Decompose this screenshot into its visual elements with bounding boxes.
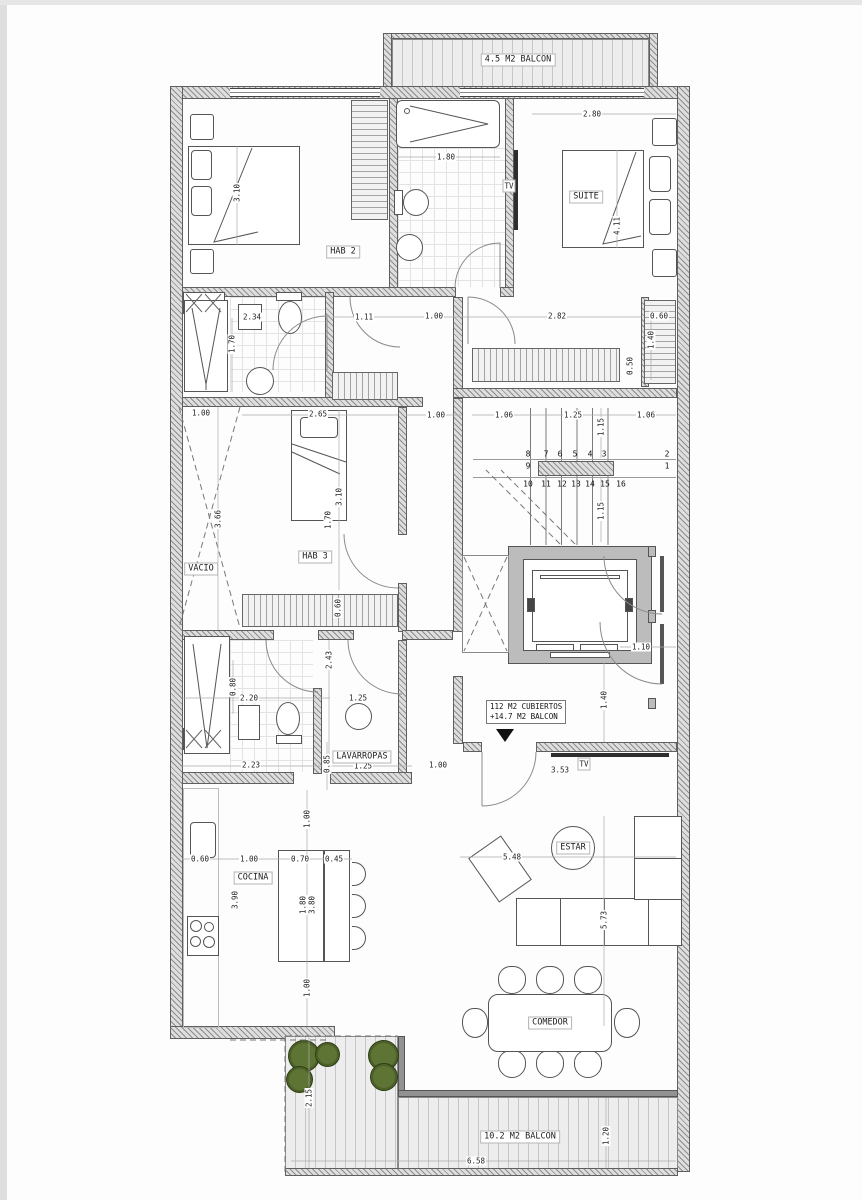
dimension-label: 3.10 xyxy=(335,487,344,507)
dimension-label: 1.70 xyxy=(228,334,237,354)
dimension-label: 0.45 xyxy=(324,855,344,864)
stair-step-number: 15 xyxy=(600,480,610,489)
dimension-label: 1.00 xyxy=(303,809,312,829)
dimension-label: 2.43 xyxy=(325,650,334,670)
dimension-label: 1.00 xyxy=(239,855,259,864)
stool xyxy=(352,894,366,918)
area-note-box: 112 M2 CUBIERTOS +14.7 M2 BALCON xyxy=(486,700,566,724)
wall-segment xyxy=(170,86,183,1038)
dimension-label: 0.70 xyxy=(290,855,310,864)
duct-shaft xyxy=(463,556,508,652)
stair-step-number: 7 xyxy=(544,450,549,459)
wall-segment xyxy=(648,698,656,709)
plant xyxy=(370,1063,398,1091)
dimension-label: 5.48 xyxy=(502,853,522,862)
top-balcony-label: 4.5 M2 BALCON xyxy=(481,54,556,67)
wall-segment xyxy=(383,33,392,88)
wall-segment xyxy=(313,688,322,774)
dimension-label: 1.25 xyxy=(348,694,368,703)
elevator-cabin xyxy=(532,570,628,642)
bathtub-drain xyxy=(404,108,410,114)
burner xyxy=(204,922,214,932)
area-note-line1: 112 M2 CUBIERTOS xyxy=(490,702,562,712)
window xyxy=(460,88,644,97)
toilet-bowl xyxy=(278,301,302,334)
dimension-label: 1.11 xyxy=(354,313,374,322)
wall-segment xyxy=(398,640,407,774)
stair-step-number: 3 xyxy=(602,450,607,459)
wall-segment xyxy=(182,772,294,784)
dimension-label: 1.40 xyxy=(647,330,656,350)
door-leaf xyxy=(660,556,664,612)
lavarropas-label: LAVARROPAS xyxy=(332,751,391,764)
wall-segment xyxy=(648,610,656,623)
elevator-rail xyxy=(540,575,620,579)
toilet-bowl xyxy=(276,702,300,735)
wardrobe-hab3 xyxy=(242,594,398,627)
bottom-balcony-label: 10.2 M2 BALCON xyxy=(480,1131,560,1144)
wall-segment xyxy=(453,297,463,390)
dimension-label: 2.65 xyxy=(308,410,328,419)
refrigerator xyxy=(190,822,216,858)
wall-segment xyxy=(536,742,677,752)
dimension-label: 3.66 xyxy=(214,509,223,529)
nightstand xyxy=(190,114,214,140)
stair-landing xyxy=(538,461,614,476)
sink-round xyxy=(396,234,423,261)
pillow xyxy=(191,150,212,180)
entry-arrow xyxy=(496,729,514,742)
elevator-guide xyxy=(527,598,535,612)
stair-line xyxy=(473,477,676,478)
wall-segment xyxy=(649,33,658,88)
pillow xyxy=(649,199,671,235)
dimension-label: 1.15 xyxy=(597,417,606,437)
floor-plan-page: 4.5 M2 BALCON xyxy=(0,0,862,1200)
dimension-label: 1.06 xyxy=(494,411,514,420)
dimension-label: 1.00 xyxy=(303,978,312,998)
chair xyxy=(536,1050,564,1078)
glass-rail xyxy=(398,1036,405,1094)
dimension-label: 2.15 xyxy=(305,1088,314,1108)
toilet-tank xyxy=(394,190,403,215)
stool xyxy=(352,862,366,886)
area-note-line2: +14.7 M2 BALCON xyxy=(490,712,562,722)
dimension-label: 3.80 xyxy=(308,895,317,915)
pillow xyxy=(300,417,338,438)
dimension-label: 1.00 xyxy=(424,312,444,321)
chair xyxy=(498,1050,526,1078)
pillow xyxy=(191,186,212,216)
wardrobe-hab2 xyxy=(351,100,388,220)
toilet-bowl xyxy=(403,189,429,216)
shower xyxy=(184,636,230,754)
dimension-label: 2.34 xyxy=(242,313,262,322)
comedor-label: COMEDOR xyxy=(528,1017,572,1030)
wall-segment xyxy=(285,1168,678,1176)
wall-segment xyxy=(463,742,482,752)
dimension-label: 3.10 xyxy=(233,183,242,203)
hab3-label: HAB 3 xyxy=(298,551,332,564)
shower xyxy=(184,300,228,392)
dimension-label: 1.40 xyxy=(600,690,609,710)
dimension-label: 3.90 xyxy=(231,890,240,910)
stair-step-number: 8 xyxy=(526,450,531,459)
dimension-label: 0.60 xyxy=(190,855,210,864)
elevator-guide xyxy=(625,598,633,612)
chair xyxy=(462,1008,488,1038)
stair-step-number: 12 xyxy=(557,480,567,489)
toilet-tank xyxy=(276,292,302,301)
wall-segment xyxy=(500,287,514,297)
dimension-label: 0.50 xyxy=(626,356,635,376)
glass-rail xyxy=(398,1090,678,1097)
burner xyxy=(190,920,202,932)
chair xyxy=(498,966,526,994)
elevator-door-sill xyxy=(536,644,574,651)
elevator-door-sill xyxy=(550,652,610,658)
stair-step-number: 2 xyxy=(665,450,670,459)
dimension-label: 0.60 xyxy=(334,598,343,618)
stair-step-number: 4 xyxy=(588,450,593,459)
hab2-label: HAB 2 xyxy=(326,246,360,259)
wall-segment xyxy=(453,676,463,744)
bathroom1-floor xyxy=(398,148,505,287)
nightstand xyxy=(652,249,677,277)
dimension-label: 1.25 xyxy=(563,411,583,420)
pillow xyxy=(649,156,671,192)
cocina-label: COCINA xyxy=(234,872,273,885)
bathtub xyxy=(396,100,500,148)
door-leaf xyxy=(660,624,664,684)
wall-segment xyxy=(453,398,463,632)
dimension-label: 0.80 xyxy=(229,677,238,697)
burner xyxy=(203,936,215,948)
dimension-label: 1.20 xyxy=(602,1126,611,1146)
dimension-label: 2.80 xyxy=(582,110,602,119)
stair-step-number: 9 xyxy=(526,462,531,471)
stair-step-number: 5 xyxy=(573,450,578,459)
stool xyxy=(352,926,366,950)
wall-segment xyxy=(453,388,677,398)
dimension-label: 1.80 xyxy=(436,153,456,162)
stair-step-number: 16 xyxy=(616,480,626,489)
stair-step-number: 14 xyxy=(585,480,595,489)
wardrobe-hall xyxy=(332,372,398,400)
stair-step-number: 10 xyxy=(523,480,533,489)
nightstand xyxy=(652,118,677,146)
sofa-cushion-line xyxy=(635,858,681,859)
wall-segment xyxy=(318,630,354,640)
chair xyxy=(536,966,564,994)
sofa-cushion-line xyxy=(648,899,649,945)
dimension-label: 6.58 xyxy=(466,1157,486,1166)
wall-segment xyxy=(398,583,407,632)
dimension-label: 1.00 xyxy=(426,411,446,420)
dimension-label: 3.53 xyxy=(550,766,570,775)
wall-segment xyxy=(677,86,690,1172)
chair xyxy=(614,1008,640,1038)
laundry-sink xyxy=(345,703,372,730)
sink-round xyxy=(246,367,274,395)
chair xyxy=(574,1050,602,1078)
dimension-label: 1.70 xyxy=(324,510,333,530)
burner xyxy=(190,936,201,947)
dimension-label: 5.73 xyxy=(600,910,609,930)
dimension-label: 0.85 xyxy=(323,754,332,774)
dimension-label: 1.00 xyxy=(428,761,448,770)
wall-segment xyxy=(648,546,656,557)
dimension-label: 0.60 xyxy=(649,312,669,321)
suite-label: SUITE xyxy=(569,191,603,204)
wall-segment xyxy=(505,98,514,290)
tv-living-label: TV xyxy=(577,758,590,771)
apartment-floor-plan: 4.5 M2 BALCON xyxy=(0,0,862,1200)
chair xyxy=(574,966,602,994)
tv-living xyxy=(551,753,669,757)
dimension-label: 1.06 xyxy=(636,411,656,420)
dimension-label: 1.10 xyxy=(631,643,651,652)
toilet-tank xyxy=(276,735,302,744)
sofa-cushion-line xyxy=(560,899,561,945)
wall-segment xyxy=(330,772,412,784)
stair-line xyxy=(473,459,676,460)
wall-segment xyxy=(398,407,407,535)
elevator-door-sill xyxy=(580,644,618,651)
dimension-label: 1.80 xyxy=(299,895,308,915)
armchair xyxy=(468,835,532,902)
stair-step-number: 1 xyxy=(665,462,670,471)
estar-label: ESTAR xyxy=(556,842,590,855)
tv-suite-label: TV xyxy=(502,180,515,193)
vanity xyxy=(238,705,260,740)
dimension-label: 1.00 xyxy=(191,409,211,418)
dimension-label: 2.23 xyxy=(241,761,261,770)
dimension-label: 4.11 xyxy=(613,216,622,236)
stair-step-number: 11 xyxy=(541,480,551,489)
dimension-label: 1.15 xyxy=(597,501,606,521)
stair-step-number: 13 xyxy=(571,480,581,489)
nightstand xyxy=(190,249,214,274)
window xyxy=(230,88,380,97)
stair-step-number: 6 xyxy=(558,450,563,459)
wardrobe-suite xyxy=(472,348,620,382)
dimension-label: 2.20 xyxy=(239,694,259,703)
plant xyxy=(315,1042,340,1067)
wall-segment xyxy=(402,630,453,640)
island-overhang xyxy=(324,850,350,962)
dimension-label: 2.82 xyxy=(547,312,567,321)
vacio-label: VACIO xyxy=(184,563,218,576)
